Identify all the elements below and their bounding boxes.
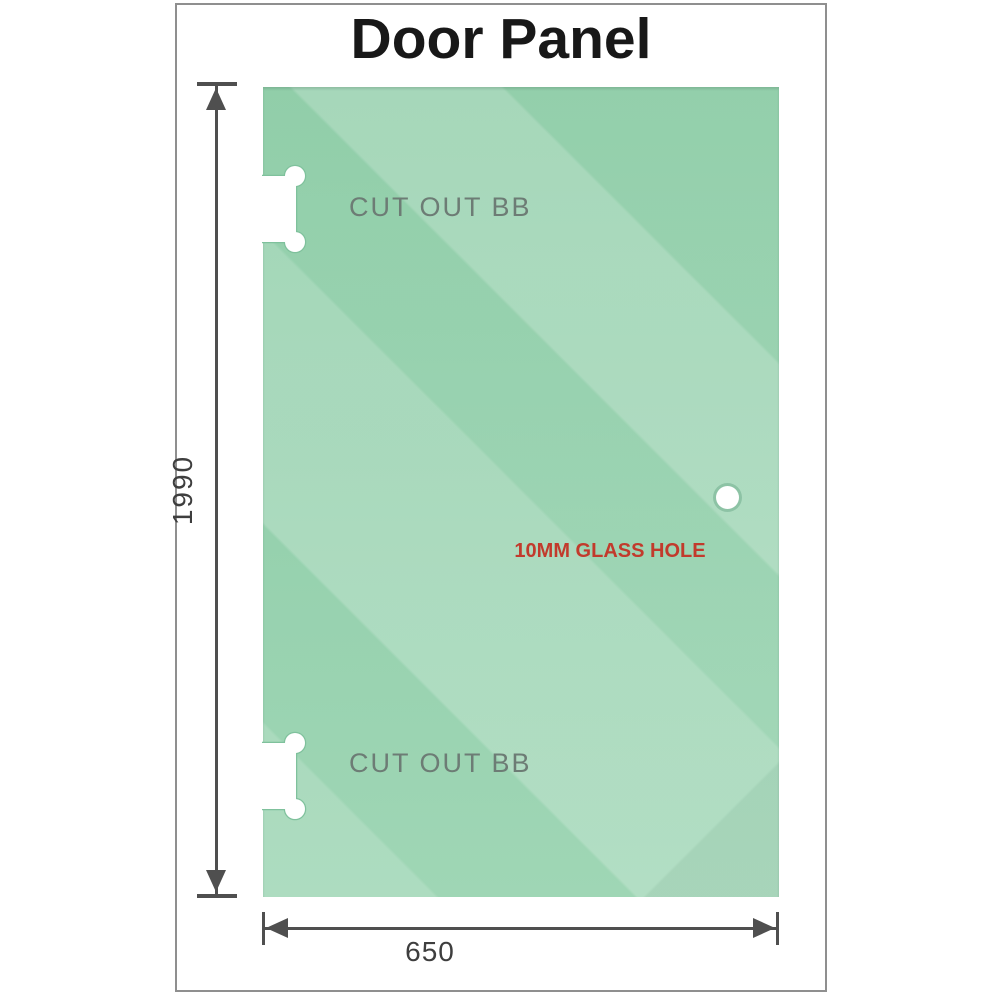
glass-hole-icon bbox=[716, 486, 739, 509]
height-dimension-line bbox=[215, 86, 218, 894]
glass-hole-label: 10MM GLASS HOLE bbox=[512, 539, 708, 563]
arrow-down-icon bbox=[206, 870, 226, 892]
cutout-label-bottom: CUT OUT BB bbox=[349, 747, 532, 779]
height-value-label: 1990 bbox=[167, 430, 199, 550]
width-dimension-tick-right bbox=[776, 912, 779, 945]
width-dimension-line bbox=[265, 927, 776, 930]
arrow-right-icon bbox=[753, 918, 775, 938]
cutout-notch-top-icon bbox=[262, 164, 310, 254]
cutout-label-top: CUT OUT BB bbox=[349, 191, 532, 223]
arrow-up-icon bbox=[206, 88, 226, 110]
page-title: Door Panel bbox=[175, 6, 827, 72]
arrow-left-icon bbox=[266, 918, 288, 938]
height-dimension-cap-bottom bbox=[197, 894, 237, 898]
cutout-notch-bottom-icon bbox=[262, 731, 310, 821]
page: Door Panel 1990 650 bbox=[0, 0, 1000, 1000]
width-value-label: 650 bbox=[380, 936, 480, 968]
